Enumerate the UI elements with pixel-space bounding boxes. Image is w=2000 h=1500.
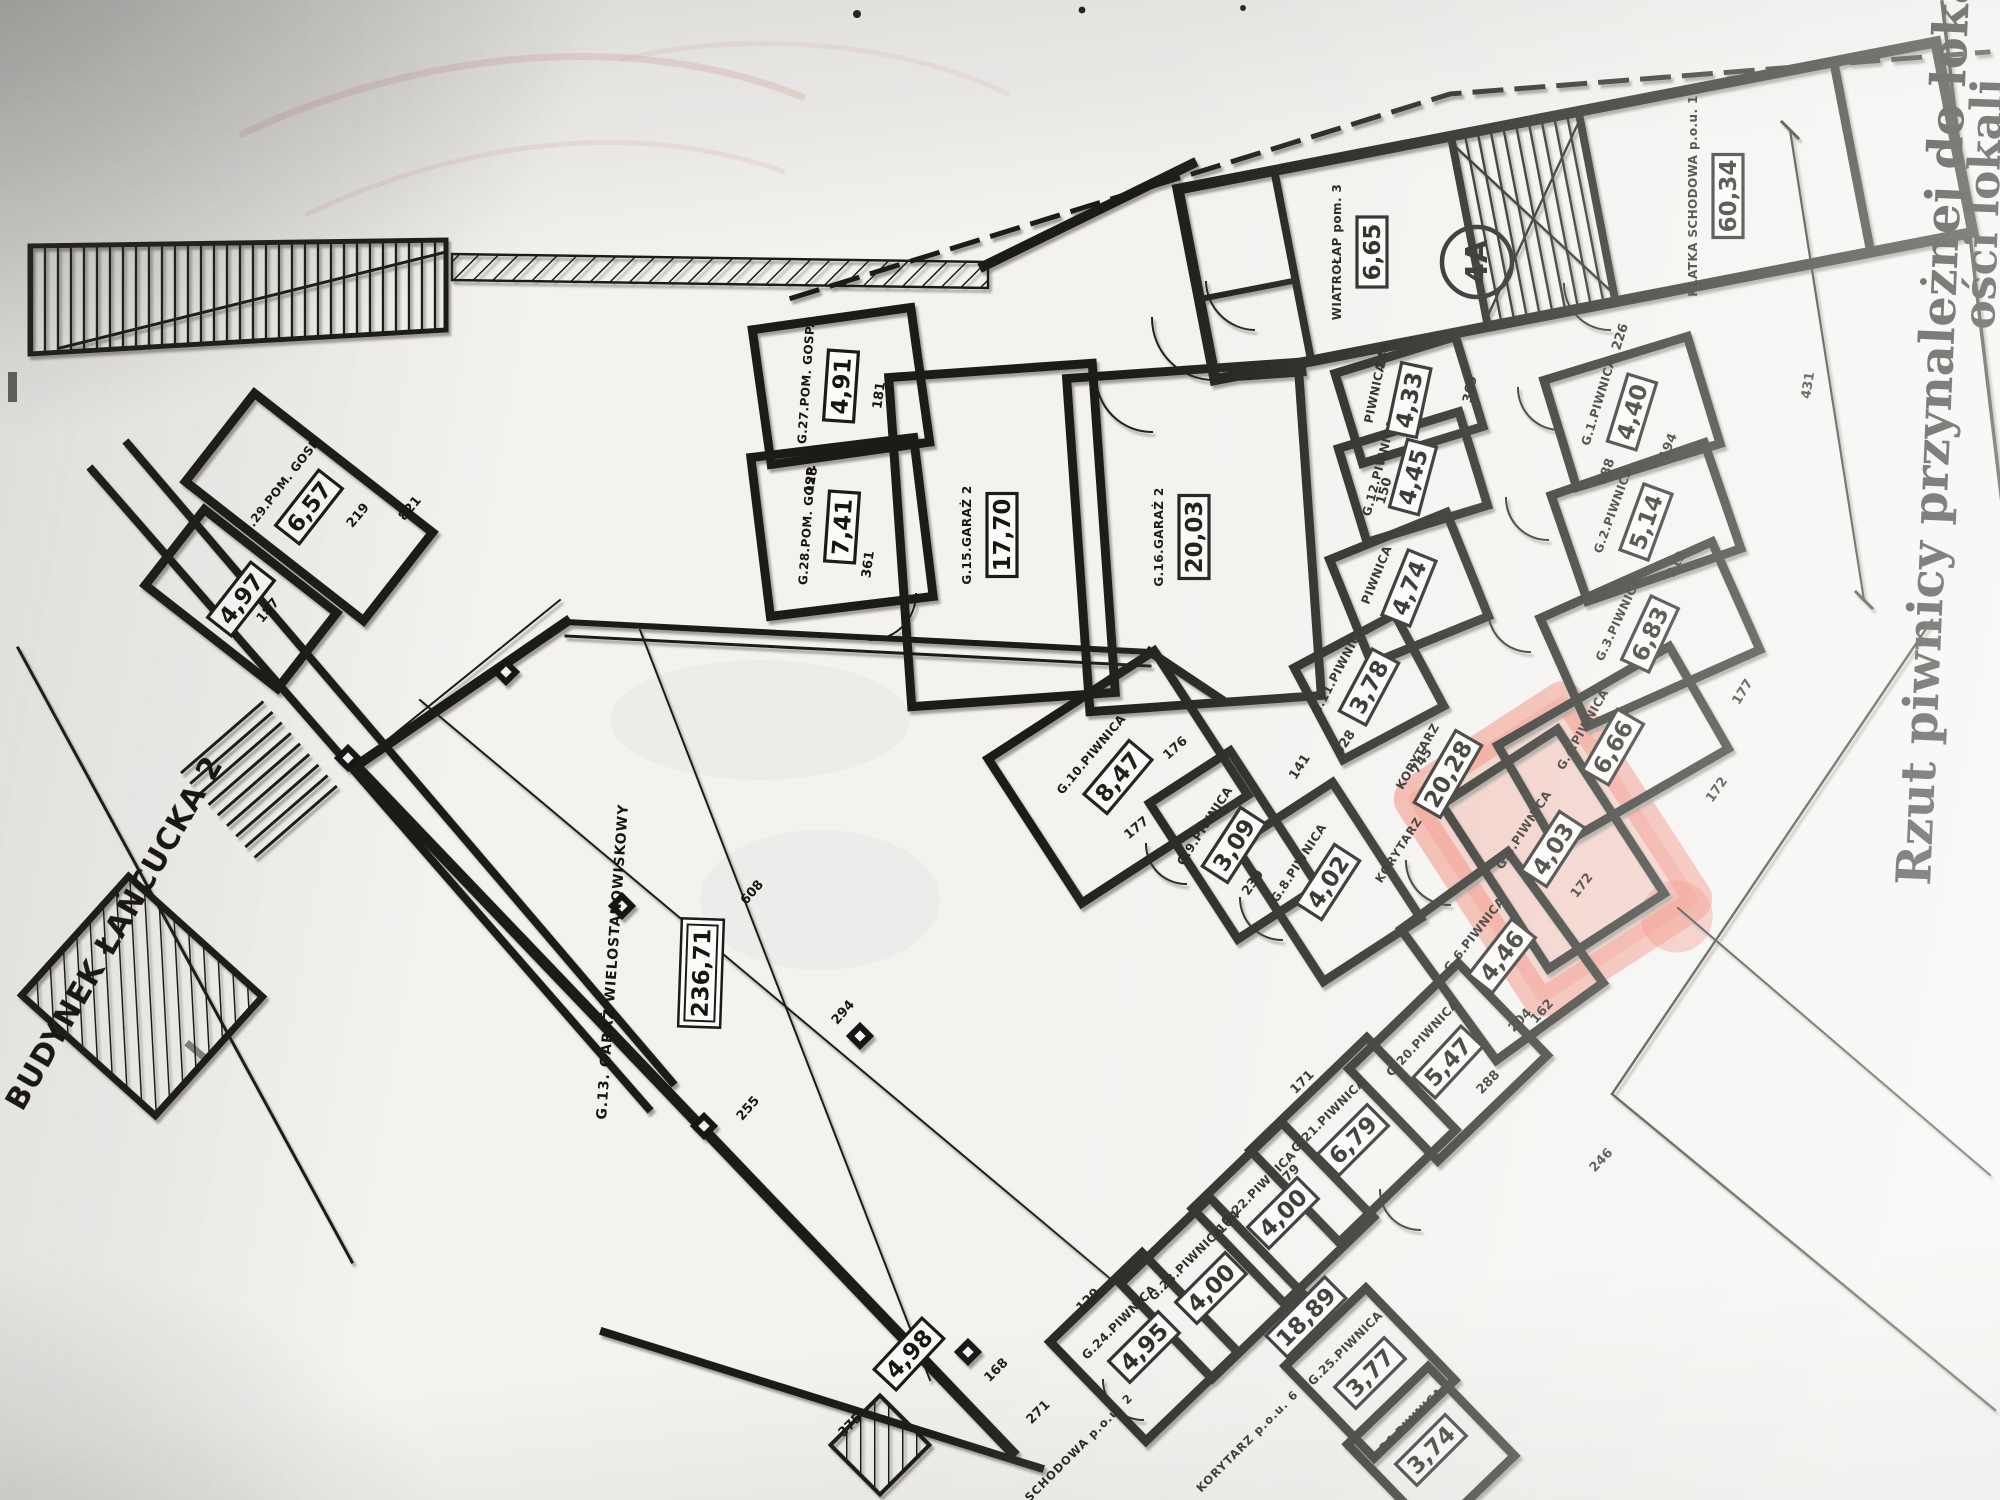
dimension-label: 226 bbox=[1609, 322, 1632, 352]
room-g10-piwnica: 8,47G.10.PIWNICA bbox=[1054, 712, 1162, 825]
room-g29-pom-gosp: 6,57G.29.POM. GOSP. bbox=[239, 433, 359, 564]
walls-layer bbox=[18, 2, 2000, 1500]
room-g13-garaz-hala: 236,71 bbox=[678, 918, 724, 1027]
dimension-label: 271 bbox=[1024, 1398, 1054, 1428]
dimension-label: 255 bbox=[734, 1094, 763, 1124]
dimension-label: 168 bbox=[982, 1356, 1012, 1386]
dimension-label: 288 bbox=[1474, 1068, 1504, 1098]
room-g1-piwnica: 4,40G.1.PIWNICA bbox=[1579, 356, 1660, 460]
room-area-g15-garaz: 17,70 bbox=[990, 499, 1016, 572]
room-area-klatka-1: 60,34 bbox=[1716, 160, 1742, 233]
room-code-g15-garaz: G.15.GARAŻ 2 bbox=[959, 485, 974, 584]
room-g16-garaz: 20,03G.16.GARAŻ 2 bbox=[1151, 487, 1209, 586]
plan-label: KORYTARZ p.o.u. 6 bbox=[1193, 1387, 1301, 1495]
room-area-g16-garaz: 20,03 bbox=[1182, 501, 1208, 574]
ramp-band-top-left bbox=[30, 240, 446, 354]
room-piwnica-474: 4,74PIWNICA bbox=[1357, 540, 1436, 626]
wall-connector-east bbox=[1215, 372, 1302, 378]
wing-top-right-walls bbox=[1178, 42, 1973, 380]
dimension-label: 181 bbox=[870, 381, 889, 410]
plan-canvas: 4A 6,65WIATROŁAP pom. 360,34KLATKA SCHOD… bbox=[0, 0, 2000, 1500]
room-code-g16-garaz: G.16.GARAŻ 2 bbox=[1151, 487, 1166, 586]
dimension-label: 294 bbox=[829, 998, 858, 1028]
dimension-label: 361 bbox=[859, 550, 878, 579]
room-code-wiatrolap: WIATROŁAP pom. 3 bbox=[1330, 184, 1344, 320]
sheet-title-cut: ości lokali bbox=[1954, 77, 2000, 330]
column-markers bbox=[334, 658, 982, 1366]
room-area-g28-pom-gosp: 7,41 bbox=[828, 498, 858, 556]
insulated-wall-band bbox=[452, 254, 988, 288]
room-g27-pom-gosp: 4,91G.27.POM. GOSP. bbox=[795, 323, 860, 448]
wall-connector-north bbox=[984, 164, 1192, 266]
photographed-floor-plan: 4A 6,65WIATROŁAP pom. 360,34KLATKA SCHOD… bbox=[0, 0, 2000, 1500]
room-wiatrolap: 6,65WIATROŁAP pom. 3 bbox=[1330, 184, 1387, 320]
room-piwnica-433: 4,33PIWNICA bbox=[1361, 357, 1431, 437]
room-code-klatka-1: KLATKA SCHODOWA p.o.u. 1 bbox=[1686, 95, 1700, 296]
dimension-label: 177 bbox=[1122, 814, 1152, 843]
room-pom-498: 4,98 bbox=[874, 1318, 944, 1390]
room-code-g27-pom-gosp: G.27.POM. GOSP. bbox=[795, 323, 817, 445]
dimension-label: 172 bbox=[1703, 775, 1731, 806]
room-area-wiatrolap: 6,65 bbox=[1360, 224, 1386, 281]
dimension-label: 431 bbox=[1799, 371, 1818, 400]
room-area-g27-pom-gosp: 4,91 bbox=[827, 357, 857, 415]
dimension-label: 141 bbox=[1286, 752, 1313, 783]
unit-badge-label: 4A bbox=[1460, 239, 1495, 284]
dimension-label: 246 bbox=[1587, 1146, 1617, 1176]
room-g15-garaz: 17,70G.15.GARAŻ 2 bbox=[959, 485, 1017, 584]
room-klatka-1: 60,34KLATKA SCHODOWA p.o.u. 1 bbox=[1686, 95, 1743, 296]
dimension-label: 177 bbox=[1729, 677, 1756, 708]
dimension-label: 219 bbox=[344, 501, 373, 531]
dimension-label: 176 bbox=[1161, 734, 1191, 763]
stairs-hatch-top-right bbox=[1451, 111, 1616, 326]
room-area-g13-garaz-hala: 236,71 bbox=[687, 928, 716, 1018]
left-wing-corridor bbox=[18, 444, 672, 1262]
